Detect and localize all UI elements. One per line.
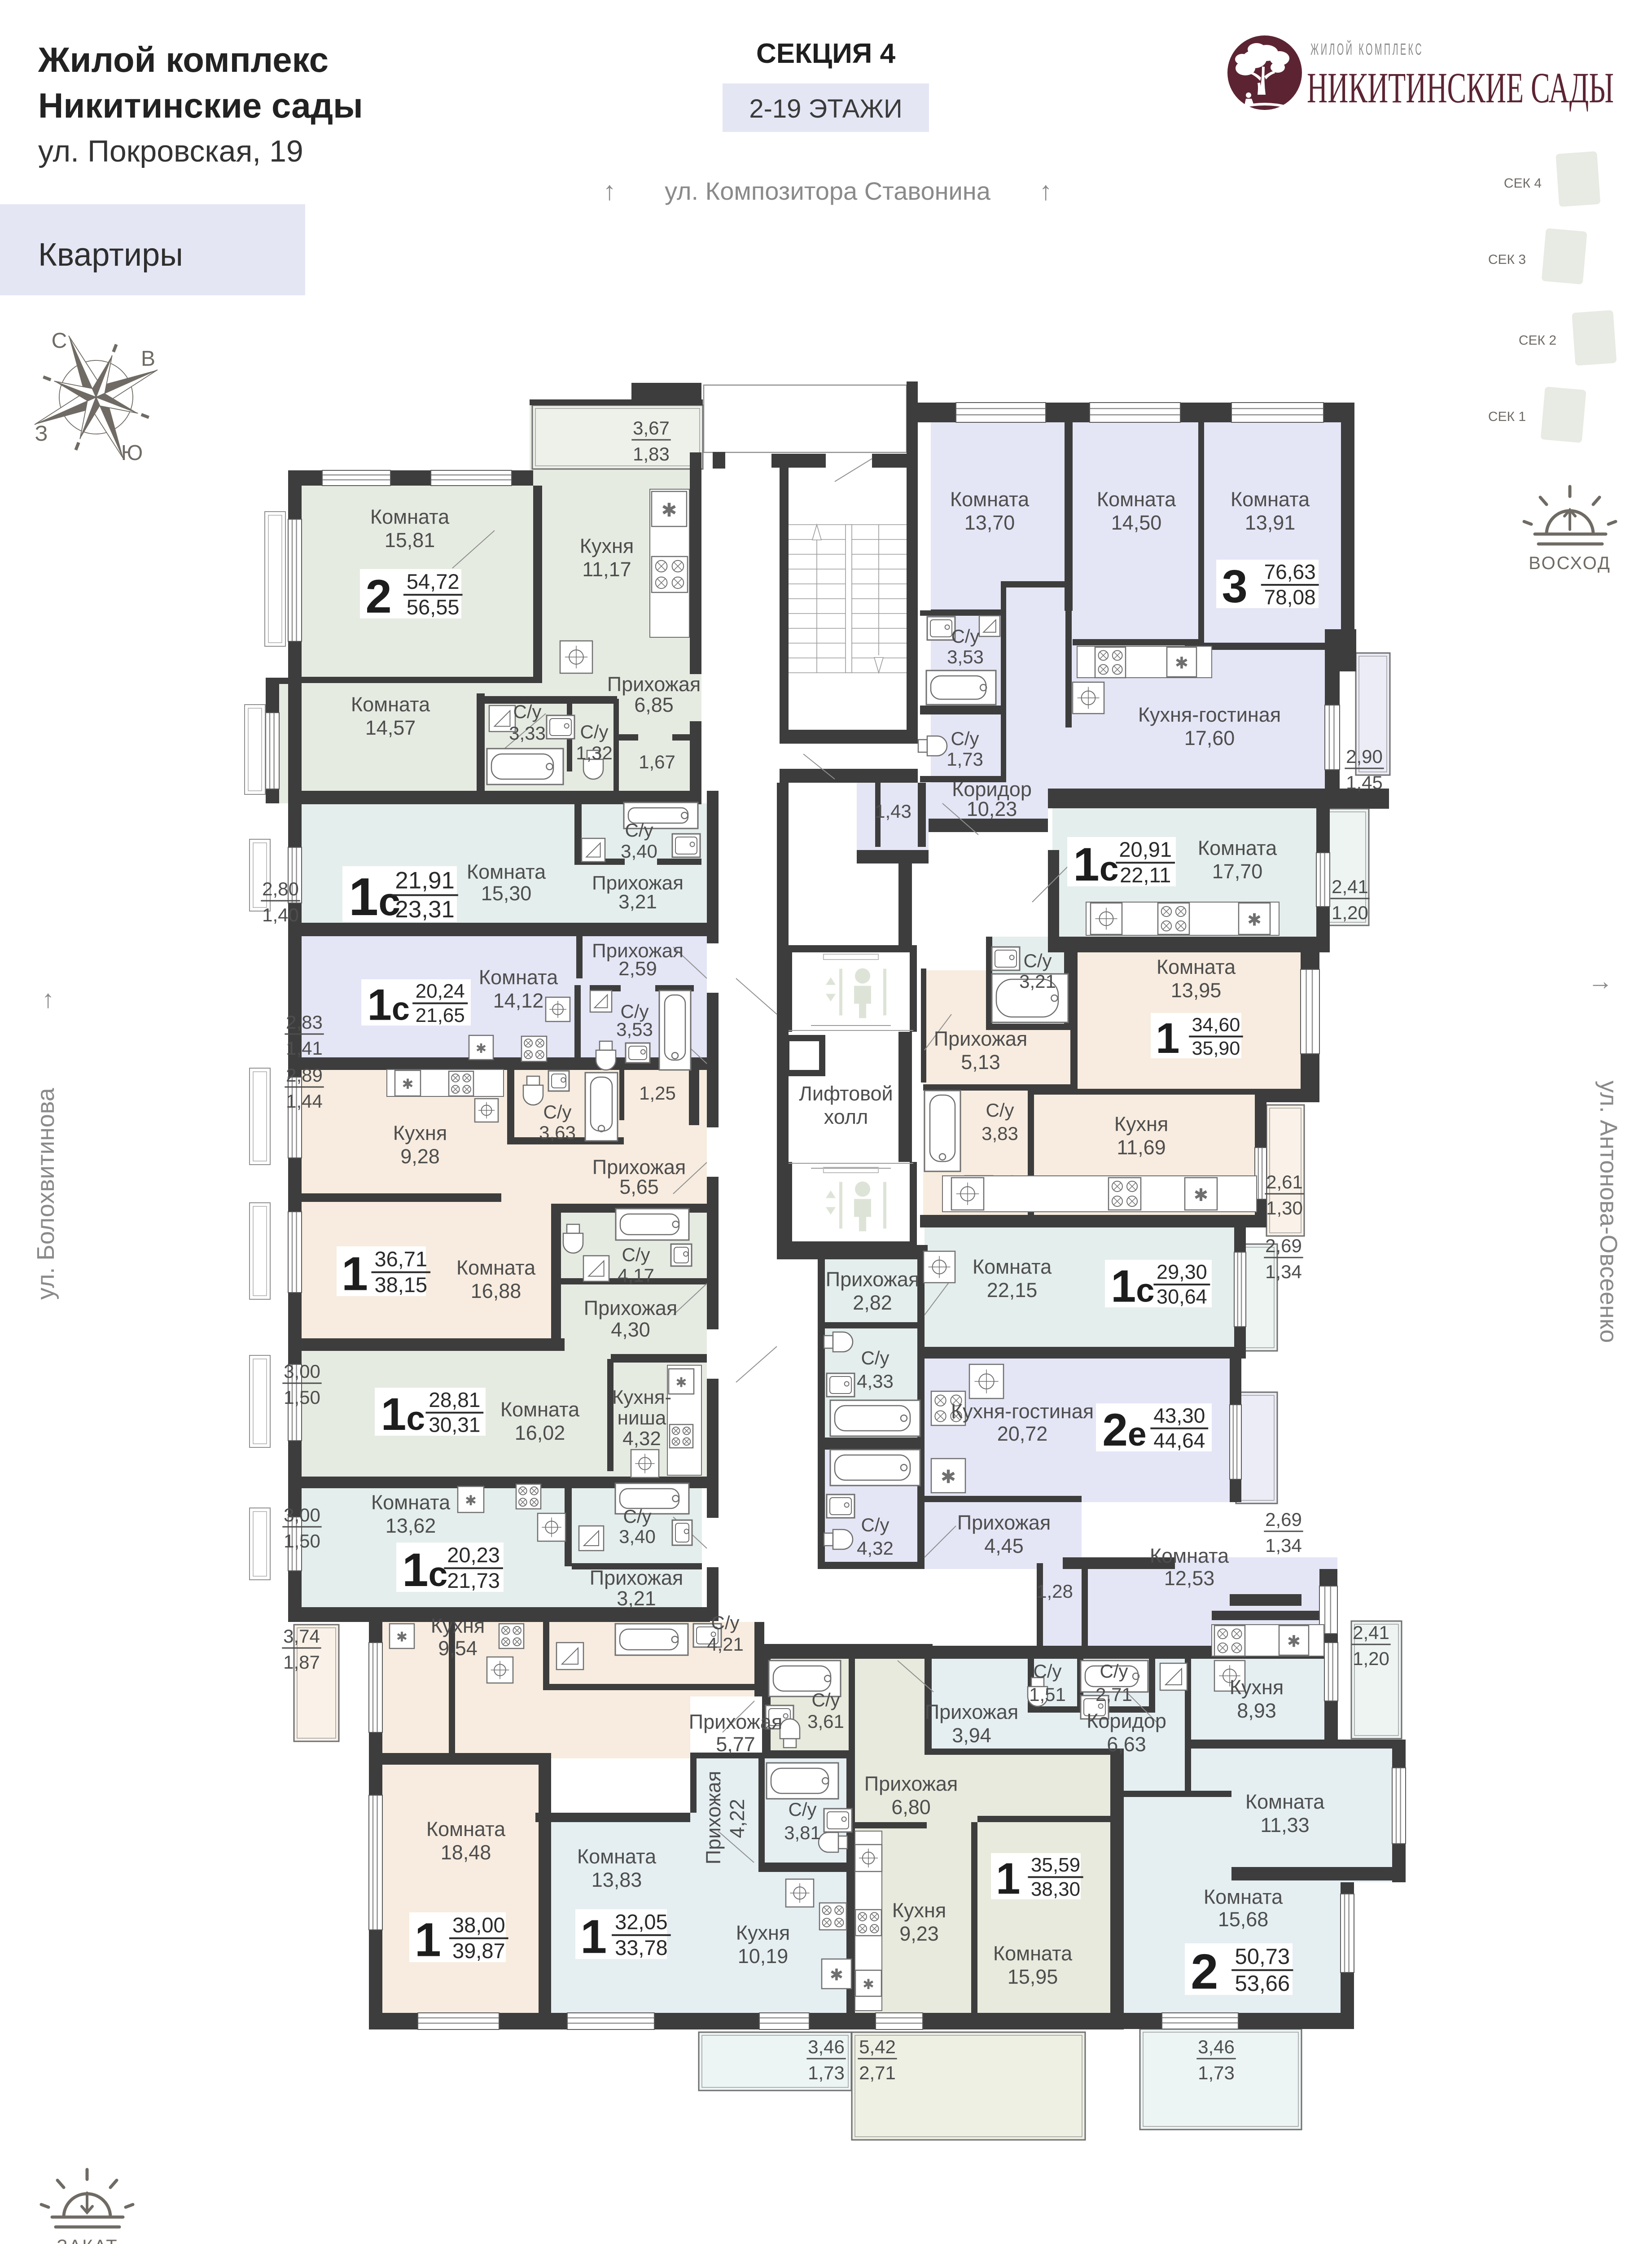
svg-text:Комната: Комната bbox=[1245, 1790, 1325, 1813]
svg-text:Прихожая: Прихожая bbox=[957, 1511, 1051, 1534]
svg-text:1,25: 1,25 bbox=[639, 1083, 676, 1104]
svg-text:3,46: 3,46 bbox=[1198, 2036, 1235, 2057]
svg-text:холл: холл bbox=[824, 1105, 868, 1128]
svg-text:С/у: С/у bbox=[812, 1689, 840, 1710]
svg-text:С/у: С/у bbox=[789, 1799, 817, 1820]
svg-text:13,95: 13,95 bbox=[1171, 979, 1222, 1002]
svg-text:С/у: С/у bbox=[951, 626, 980, 647]
svg-text:1,20: 1,20 bbox=[1353, 1648, 1389, 1669]
svg-text:1,83: 1,83 bbox=[633, 443, 670, 465]
svg-text:9,28: 9,28 bbox=[400, 1145, 440, 1168]
svg-text:35,90: 35,90 bbox=[1192, 1038, 1240, 1059]
svg-text:Никитинские сады: Никитинские сады bbox=[38, 86, 363, 125]
svg-text:С/у: С/у bbox=[1100, 1661, 1128, 1682]
svg-text:5,13: 5,13 bbox=[961, 1051, 1000, 1074]
svg-text:15,95: 15,95 bbox=[1008, 1965, 1058, 1988]
svg-text:1,44: 1,44 bbox=[286, 1091, 323, 1112]
svg-text:10,19: 10,19 bbox=[738, 1945, 789, 1968]
svg-text:43,30: 43,30 bbox=[1153, 1404, 1205, 1427]
svg-text:4,21: 4,21 bbox=[707, 1634, 744, 1655]
svg-text:14,12: 14,12 bbox=[493, 989, 544, 1012]
svg-text:✱: ✱ bbox=[661, 500, 677, 521]
svg-text:1,43: 1,43 bbox=[875, 801, 911, 822]
svg-text:34,60: 34,60 bbox=[1192, 1014, 1240, 1035]
svg-text:4,32: 4,32 bbox=[622, 1428, 661, 1450]
svg-text:Комната: Комната bbox=[577, 1845, 657, 1868]
svg-text:✱: ✱ bbox=[941, 1467, 956, 1487]
svg-text:3,21: 3,21 bbox=[617, 1587, 656, 1610]
svg-text:3,21: 3,21 bbox=[618, 891, 657, 913]
svg-text:СЕК 3: СЕК 3 bbox=[1488, 252, 1526, 267]
svg-text:Жилой комплекс: Жилой комплекс bbox=[38, 40, 329, 79]
svg-text:2,80: 2,80 bbox=[262, 878, 299, 899]
svg-text:Кухня: Кухня bbox=[892, 1899, 946, 1922]
svg-text:1,45: 1,45 bbox=[1346, 772, 1383, 793]
svg-text:1,73: 1,73 bbox=[947, 749, 983, 770]
svg-text:↑: ↑ bbox=[1039, 176, 1052, 206]
svg-text:16,88: 16,88 bbox=[471, 1280, 521, 1302]
svg-text:НИКИТИНСКИЕ САДЫ: НИКИТИНСКИЕ САДЫ bbox=[1307, 64, 1614, 112]
svg-text:Комната: Комната bbox=[500, 1398, 580, 1421]
svg-text:ЖИЛОЙ КОМПЛЕКС: ЖИЛОЙ КОМПЛЕКС bbox=[1310, 39, 1424, 58]
svg-text:С/у: С/у bbox=[951, 728, 979, 749]
svg-text:6,80: 6,80 bbox=[891, 1796, 931, 1819]
svg-text:3,94: 3,94 bbox=[952, 1724, 991, 1747]
svg-text:С: С bbox=[52, 329, 67, 353]
svg-text:Комната: Комната bbox=[456, 1256, 536, 1279]
svg-text:С/у: С/у bbox=[861, 1514, 890, 1535]
svg-text:Комната: Комната bbox=[371, 1491, 451, 1514]
svg-text:2,83: 2,83 bbox=[286, 1012, 323, 1033]
svg-text:✱: ✱ bbox=[476, 1042, 486, 1056]
svg-text:13,70: 13,70 bbox=[964, 511, 1015, 534]
svg-text:С/у: С/у bbox=[625, 820, 653, 841]
svg-text:✱: ✱ bbox=[830, 1966, 843, 1984]
svg-text:1,87: 1,87 bbox=[283, 1652, 320, 1673]
svg-text:1,73: 1,73 bbox=[1198, 2062, 1235, 2083]
svg-text:Комната: Комната bbox=[1150, 1544, 1229, 1567]
svg-text:Прихожая: Прихожая bbox=[925, 1701, 1019, 1723]
svg-text:38,00: 38,00 bbox=[452, 1913, 505, 1937]
svg-text:3,81: 3,81 bbox=[784, 1822, 821, 1843]
svg-text:1,30: 1,30 bbox=[1266, 1197, 1303, 1218]
svg-text:С/у: С/у bbox=[861, 1347, 890, 1368]
svg-text:Прихожая: Прихожая bbox=[702, 1771, 725, 1865]
svg-text:2,61: 2,61 bbox=[1266, 1171, 1303, 1192]
svg-text:20,72: 20,72 bbox=[997, 1422, 1048, 1445]
svg-text:3,46: 3,46 bbox=[808, 2036, 845, 2057]
svg-text:30,31: 30,31 bbox=[429, 1413, 480, 1436]
svg-text:50,73: 50,73 bbox=[1235, 1945, 1290, 1969]
svg-text:4,22: 4,22 bbox=[726, 1799, 749, 1838]
svg-text:Комната: Комната bbox=[426, 1818, 506, 1841]
svg-text:Комната: Комната bbox=[1157, 955, 1236, 978]
svg-text:СЕК 4: СЕК 4 bbox=[1504, 176, 1542, 191]
svg-text:3,40: 3,40 bbox=[621, 841, 657, 862]
svg-text:Комната: Комната bbox=[351, 693, 430, 716]
svg-text:6,63: 6,63 bbox=[1107, 1733, 1146, 1756]
svg-text:3,61: 3,61 bbox=[807, 1711, 844, 1732]
svg-text:3,00: 3,00 bbox=[284, 1504, 320, 1525]
svg-text:35,59: 35,59 bbox=[1031, 1854, 1080, 1876]
svg-text:Прихожая: Прихожая bbox=[607, 673, 701, 696]
svg-text:15,30: 15,30 bbox=[481, 882, 532, 905]
svg-text:2,71: 2,71 bbox=[859, 2062, 896, 2083]
svg-text:1,50: 1,50 bbox=[284, 1530, 320, 1552]
svg-text:53,66: 53,66 bbox=[1235, 1972, 1290, 1996]
svg-text:↑: ↑ bbox=[42, 985, 54, 1013]
svg-text:ВОСХОД: ВОСХОД bbox=[1529, 553, 1611, 573]
svg-text:Прихожая: Прихожая bbox=[934, 1027, 1028, 1050]
svg-text:ЗАКАТ: ЗАКАТ bbox=[57, 2236, 118, 2244]
svg-text:✱: ✱ bbox=[675, 1375, 687, 1390]
svg-text:1,41: 1,41 bbox=[286, 1038, 323, 1059]
svg-text:11,69: 11,69 bbox=[1117, 1136, 1166, 1159]
svg-text:21,91: 21,91 bbox=[395, 868, 455, 894]
svg-text:Комната: Комната bbox=[1231, 488, 1310, 511]
svg-text:2,59: 2,59 bbox=[618, 958, 657, 980]
svg-text:22,15: 22,15 bbox=[987, 1279, 1038, 1302]
svg-text:12,53: 12,53 bbox=[1164, 1567, 1215, 1590]
svg-text:СЕКЦИЯ 4: СЕКЦИЯ 4 bbox=[756, 38, 896, 69]
svg-text:1,32: 1,32 bbox=[576, 742, 613, 763]
svg-text:1,67: 1,67 bbox=[639, 751, 675, 772]
svg-text:Ю: Ю bbox=[121, 441, 143, 465]
svg-text:Кухня: Кухня bbox=[1230, 1676, 1284, 1699]
svg-text:9,54: 9,54 bbox=[438, 1637, 478, 1660]
svg-text:78,08: 78,08 bbox=[1264, 585, 1316, 609]
svg-text:Комната: Комната bbox=[950, 488, 1030, 511]
svg-text:2,71: 2,71 bbox=[1095, 1684, 1132, 1705]
svg-text:20,24: 20,24 bbox=[416, 980, 465, 1002]
svg-text:Прихожая: Прихожая bbox=[864, 1772, 958, 1795]
svg-text:44,64: 44,64 bbox=[1153, 1429, 1205, 1452]
svg-text:1,40: 1,40 bbox=[262, 904, 299, 925]
svg-text:3,83: 3,83 bbox=[982, 1123, 1018, 1144]
svg-text:5,77: 5,77 bbox=[716, 1733, 755, 1756]
svg-text:14,57: 14,57 bbox=[365, 716, 416, 739]
svg-text:Прихожая: Прихожая bbox=[584, 1297, 678, 1319]
svg-text:✱: ✱ bbox=[1247, 911, 1262, 929]
svg-text:17,70: 17,70 bbox=[1212, 860, 1263, 883]
svg-text:1: 1 bbox=[342, 1248, 368, 1301]
svg-text:3,33: 3,33 bbox=[509, 723, 546, 744]
svg-text:Лифтовой: Лифтовой bbox=[799, 1082, 893, 1105]
svg-text:16,02: 16,02 bbox=[515, 1421, 565, 1444]
svg-text:11,33: 11,33 bbox=[1260, 1814, 1309, 1836]
svg-text:✱: ✱ bbox=[863, 1977, 874, 1992]
svg-text:3,63: 3,63 bbox=[539, 1122, 576, 1143]
svg-text:С/у: С/у bbox=[1034, 1661, 1062, 1682]
svg-text:ниша: ниша bbox=[618, 1407, 666, 1429]
svg-text:3,40: 3,40 bbox=[619, 1526, 656, 1547]
svg-text:Кухня: Кухня bbox=[580, 535, 634, 557]
svg-text:С/у: С/у bbox=[986, 1100, 1014, 1121]
svg-text:Комната: Комната bbox=[467, 860, 546, 883]
svg-text:С/у: С/у bbox=[711, 1612, 740, 1633]
svg-text:4,32: 4,32 bbox=[857, 1538, 894, 1559]
svg-text:ул. Болохвитинова: ул. Болохвитинова bbox=[32, 1087, 59, 1300]
svg-text:Прихожая: Прихожая bbox=[826, 1268, 920, 1291]
svg-text:Квартиры: Квартиры bbox=[38, 237, 183, 273]
svg-text:Кухня-: Кухня- bbox=[612, 1386, 671, 1408]
svg-text:СЕК 2: СЕК 2 bbox=[1519, 333, 1556, 348]
svg-text:20,23: 20,23 bbox=[447, 1543, 500, 1567]
svg-text:→: → bbox=[1588, 967, 1613, 995]
svg-text:21,73: 21,73 bbox=[447, 1569, 500, 1592]
svg-text:4,45: 4,45 bbox=[984, 1534, 1024, 1557]
svg-text:23,31: 23,31 bbox=[395, 896, 455, 923]
svg-text:2,90: 2,90 bbox=[1346, 746, 1383, 767]
svg-text:Прихожая: Прихожая bbox=[590, 1566, 684, 1589]
svg-text:Коридор: Коридор bbox=[1087, 1709, 1166, 1732]
svg-text:ул. Композитора Ставонина: ул. Композитора Ставонина bbox=[665, 177, 991, 205]
svg-text:2: 2 bbox=[1191, 1944, 1218, 1999]
svg-text:2,41: 2,41 bbox=[1332, 876, 1368, 897]
svg-text:54,72: 54,72 bbox=[407, 570, 460, 593]
svg-text:13,62: 13,62 bbox=[386, 1514, 436, 1537]
svg-text:11,17: 11,17 bbox=[582, 558, 631, 581]
svg-text:3,53: 3,53 bbox=[947, 646, 984, 667]
svg-text:3,74: 3,74 bbox=[283, 1626, 320, 1647]
svg-text:Прихожая: Прихожая bbox=[689, 1710, 783, 1733]
svg-text:Кухня-гостиная: Кухня-гостиная bbox=[1138, 703, 1281, 726]
svg-text:22,11: 22,11 bbox=[1120, 863, 1171, 887]
svg-text:1,34: 1,34 bbox=[1265, 1535, 1302, 1556]
svg-text:4,17: 4,17 bbox=[618, 1265, 654, 1286]
svg-text:3: 3 bbox=[1222, 561, 1248, 612]
svg-text:Кухня: Кухня bbox=[393, 1122, 447, 1144]
svg-text:5,65: 5,65 bbox=[619, 1175, 659, 1198]
svg-text:13,83: 13,83 bbox=[592, 1868, 642, 1891]
svg-text:33,78: 33,78 bbox=[615, 1936, 668, 1959]
svg-text:Комната: Комната bbox=[370, 505, 450, 528]
svg-text:1,34: 1,34 bbox=[1265, 1261, 1302, 1282]
svg-text:Комната: Комната bbox=[1204, 1885, 1283, 1908]
svg-text:С/у: С/у bbox=[580, 721, 609, 742]
svg-text:36,71: 36,71 bbox=[374, 1247, 427, 1271]
svg-text:В: В bbox=[141, 347, 155, 371]
svg-text:ул. Антонова-Овсеенко: ул. Антонова-Овсеенко bbox=[1595, 1081, 1622, 1343]
svg-text:5,42: 5,42 bbox=[859, 2036, 896, 2057]
svg-text:Кухня: Кухня bbox=[1114, 1113, 1168, 1135]
svg-text:✱: ✱ bbox=[1175, 654, 1188, 672]
svg-text:1: 1 bbox=[580, 1911, 607, 1963]
svg-text:С/у: С/у bbox=[623, 1506, 652, 1527]
svg-text:1: 1 bbox=[415, 1914, 441, 1967]
svg-text:ул. Покровская, 19: ул. Покровская, 19 bbox=[38, 134, 303, 168]
svg-text:14,50: 14,50 bbox=[1111, 511, 1162, 534]
svg-text:1,51: 1,51 bbox=[1029, 1684, 1066, 1705]
svg-text:Кухня-гостиная: Кухня-гостиная bbox=[951, 1400, 1094, 1423]
svg-text:↑: ↑ bbox=[603, 176, 616, 206]
svg-text:13,91: 13,91 bbox=[1245, 511, 1296, 534]
svg-text:1: 1 bbox=[996, 1854, 1021, 1903]
svg-text:6,85: 6,85 bbox=[634, 693, 674, 716]
svg-text:✱: ✱ bbox=[1287, 1632, 1301, 1651]
svg-text:С/у: С/у bbox=[1024, 950, 1052, 971]
svg-text:С/у: С/у bbox=[622, 1244, 650, 1265]
svg-text:10,23: 10,23 bbox=[967, 798, 1017, 820]
svg-text:Кухня: Кухня bbox=[431, 1614, 485, 1637]
svg-text:38,15: 38,15 bbox=[374, 1273, 427, 1297]
svg-text:18,48: 18,48 bbox=[441, 1841, 491, 1864]
svg-text:29,30: 29,30 bbox=[1157, 1260, 1207, 1283]
svg-text:1,28: 1,28 bbox=[1036, 1581, 1073, 1602]
svg-text:1,50: 1,50 bbox=[284, 1387, 320, 1408]
svg-text:4,30: 4,30 bbox=[611, 1318, 650, 1341]
svg-text:2,69: 2,69 bbox=[1265, 1235, 1302, 1256]
svg-text:Комната: Комната bbox=[993, 1942, 1073, 1965]
svg-text:17,60: 17,60 bbox=[1184, 727, 1235, 749]
svg-text:3,67: 3,67 bbox=[633, 417, 670, 438]
svg-text:✱: ✱ bbox=[465, 1493, 477, 1508]
svg-text:Кухня: Кухня bbox=[736, 1921, 790, 1944]
svg-text:✱: ✱ bbox=[1194, 1186, 1209, 1205]
svg-text:С/у: С/у bbox=[543, 1101, 572, 1122]
svg-text:2,69: 2,69 bbox=[1265, 1509, 1302, 1530]
svg-text:9,23: 9,23 bbox=[899, 1922, 939, 1945]
svg-text:СЕК 1: СЕК 1 bbox=[1488, 409, 1526, 424]
svg-text:56,55: 56,55 bbox=[407, 595, 460, 619]
svg-text:3,21: 3,21 bbox=[1019, 971, 1056, 992]
svg-text:2,41: 2,41 bbox=[1353, 1622, 1389, 1643]
svg-text:38,30: 38,30 bbox=[1031, 1878, 1080, 1900]
svg-text:С/у: С/у bbox=[513, 701, 542, 722]
svg-text:3,53: 3,53 bbox=[616, 1019, 653, 1040]
svg-text:28,81: 28,81 bbox=[429, 1388, 480, 1411]
svg-text:30,64: 30,64 bbox=[1157, 1285, 1207, 1308]
svg-text:2: 2 bbox=[365, 570, 391, 623]
svg-text:Комната: Комната bbox=[1198, 837, 1277, 859]
svg-text:Комната: Комната bbox=[973, 1255, 1052, 1278]
svg-text:15,81: 15,81 bbox=[385, 529, 435, 552]
svg-text:✱: ✱ bbox=[396, 1630, 408, 1645]
svg-text:39,87: 39,87 bbox=[452, 1939, 505, 1963]
svg-text:21,65: 21,65 bbox=[416, 1004, 465, 1026]
svg-text:2-19 ЭТАЖИ: 2-19 ЭТАЖИ bbox=[749, 94, 902, 123]
svg-text:1,73: 1,73 bbox=[808, 2062, 845, 2083]
svg-text:20,91: 20,91 bbox=[1119, 837, 1172, 861]
svg-text:76,63: 76,63 bbox=[1264, 560, 1316, 583]
svg-text:32,05: 32,05 bbox=[615, 1910, 668, 1933]
svg-text:1,20: 1,20 bbox=[1332, 902, 1368, 923]
svg-text:2,82: 2,82 bbox=[853, 1291, 892, 1314]
svg-text:Комната: Комната bbox=[1097, 488, 1176, 511]
svg-text:Комната: Комната bbox=[479, 966, 558, 989]
svg-text:З: З bbox=[35, 422, 48, 446]
svg-text:✱: ✱ bbox=[402, 1076, 414, 1092]
svg-text:2,89: 2,89 bbox=[286, 1065, 323, 1086]
svg-text:3,00: 3,00 bbox=[284, 1361, 320, 1382]
svg-text:8,93: 8,93 bbox=[1237, 1699, 1276, 1722]
svg-text:1: 1 bbox=[1156, 1014, 1179, 1062]
svg-text:4,33: 4,33 bbox=[857, 1371, 894, 1392]
svg-text:15,68: 15,68 bbox=[1218, 1908, 1269, 1931]
